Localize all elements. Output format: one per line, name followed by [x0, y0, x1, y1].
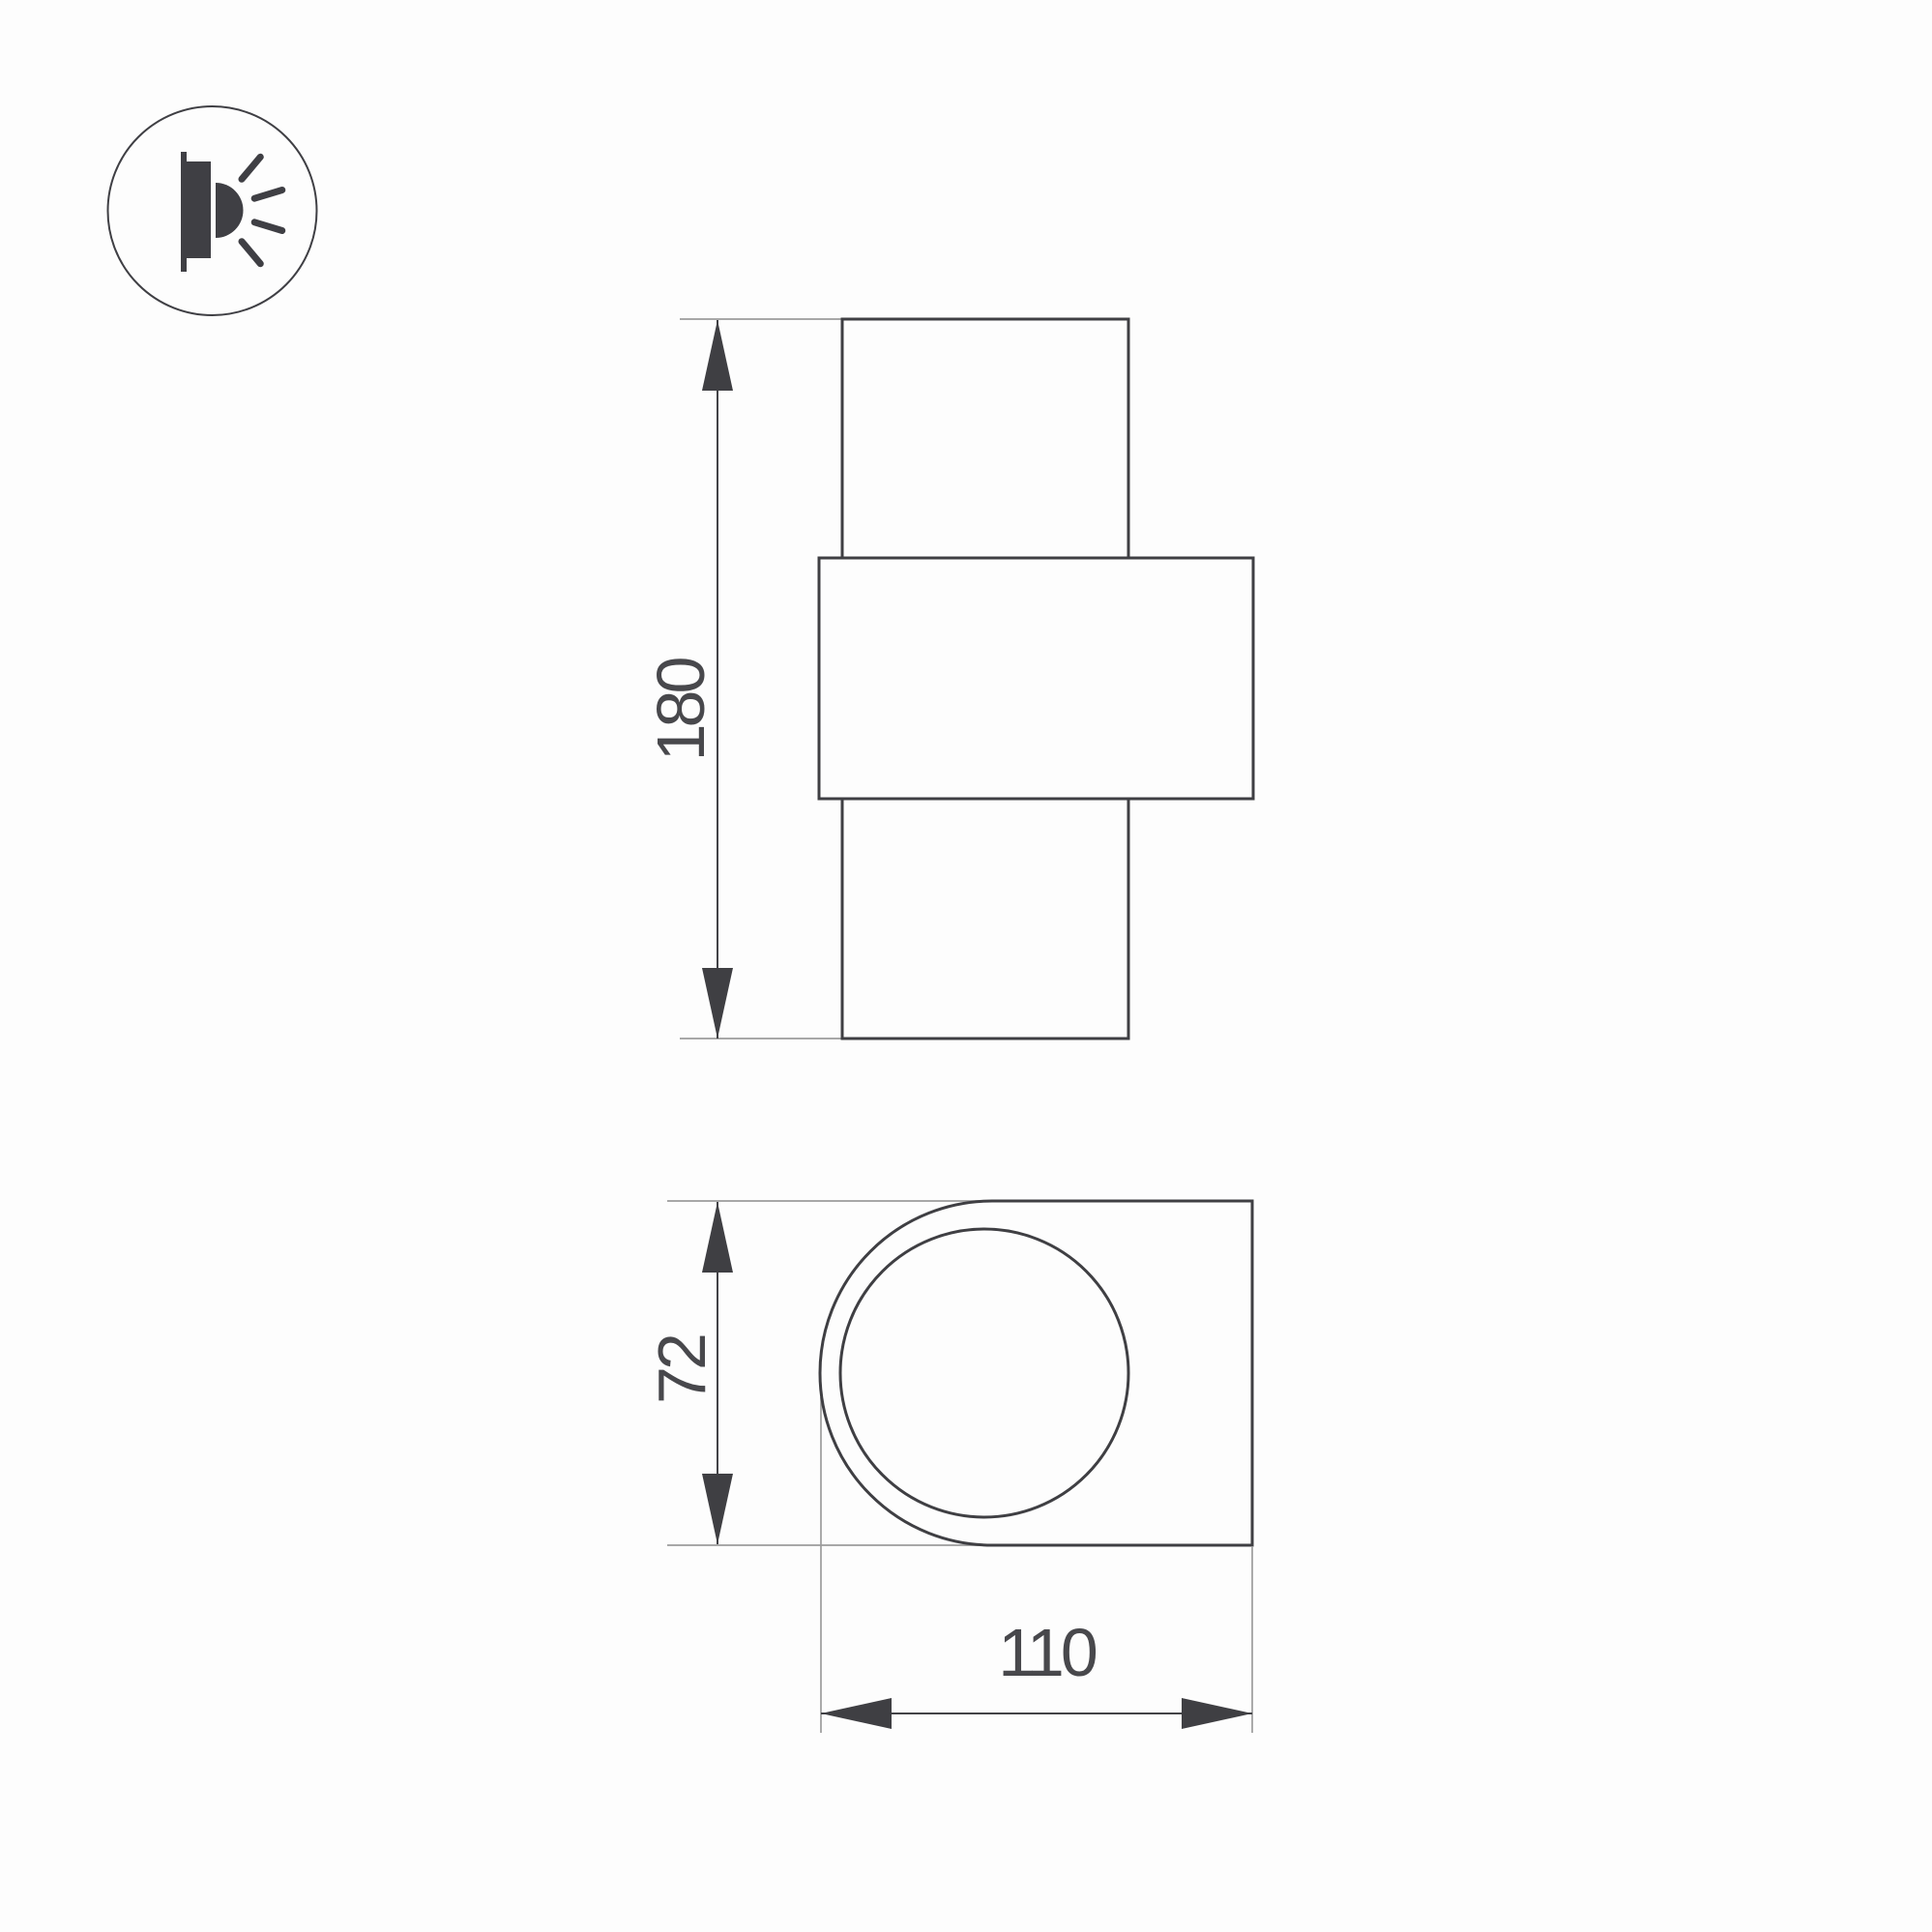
height-dim-arrow-down-icon: [702, 968, 733, 1039]
width-dim-label: 110: [998, 1615, 1097, 1690]
top-view-housing-outline: [820, 1201, 1252, 1545]
wall-light-icon: [108, 106, 317, 315]
width-dimension: 110: [821, 1615, 1252, 1729]
depth-dim-label: 72: [644, 1335, 719, 1404]
top-view: [667, 1201, 1252, 1733]
depth-dim-arrow-down-icon: [702, 1474, 733, 1544]
height-dim-arrow-up-icon: [702, 320, 733, 391]
dimension-drawing: 180 72 110: [0, 0, 1932, 1932]
icon-circle-border: [108, 106, 317, 315]
dimension-drawing-canvas: 180 72 110: [0, 0, 1932, 1932]
icon-light-dome: [216, 183, 244, 238]
width-dim-arrow-left-icon: [821, 1698, 892, 1729]
front-view: [680, 319, 1253, 1039]
front-view-wall-bracket: [819, 558, 1253, 799]
front-view-lower-tube: [842, 799, 1128, 1039]
front-view-upper-tube: [842, 319, 1128, 558]
width-dim-arrow-right-icon: [1182, 1698, 1252, 1729]
depth-dim-arrow-up-icon: [702, 1202, 733, 1273]
icon-lamp-body: [187, 161, 211, 258]
height-dimension: 180: [643, 320, 733, 1039]
depth-dimension: 72: [644, 1202, 733, 1544]
icon-light-rays: [242, 157, 282, 263]
icon-wall-line: [181, 152, 187, 272]
height-dim-label: 180: [643, 659, 718, 762]
